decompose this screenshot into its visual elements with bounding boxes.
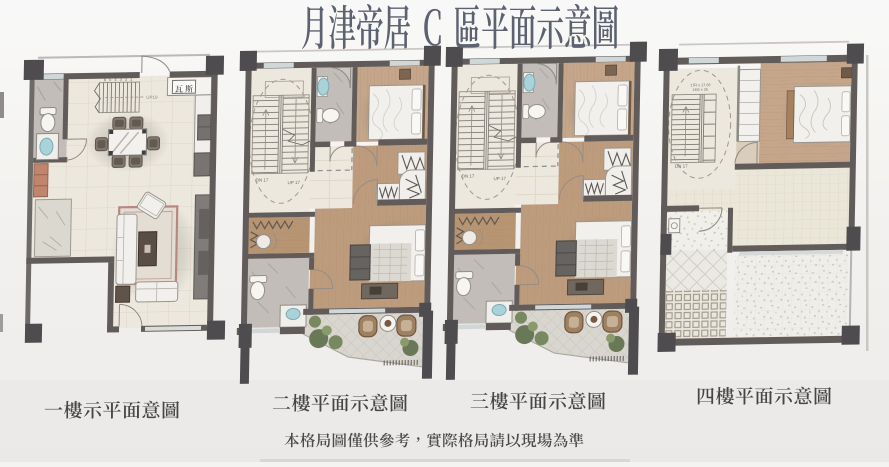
svg-text:UP19: UP19 bbox=[146, 95, 158, 100]
svg-text:DN 17: DN 17 bbox=[675, 163, 688, 168]
svg-text:16G x 25: 16G x 25 bbox=[693, 88, 708, 92]
